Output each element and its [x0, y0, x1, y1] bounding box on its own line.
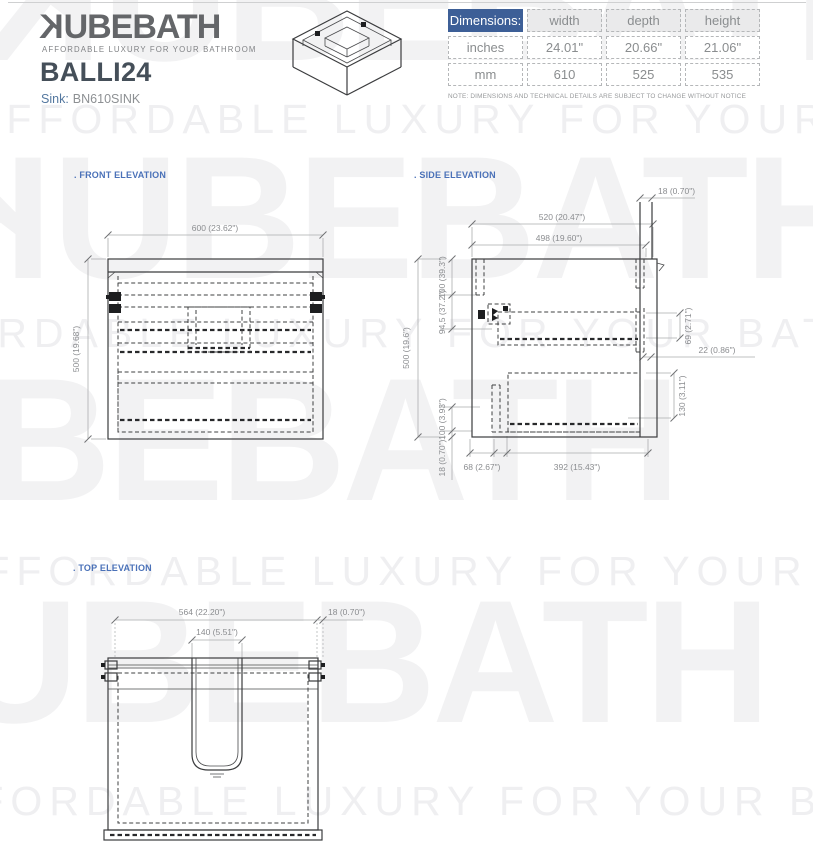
- sink-label: Sink:: [41, 92, 69, 106]
- logo-mirrored-k: K: [40, 8, 64, 47]
- svg-text:520 (20.47"): 520 (20.47"): [539, 212, 586, 222]
- front-dim-height: 500 (19.68"): [71, 256, 106, 443]
- brand-tagline: AFFORDABLE LUXURY FOR YOUR BATHROOM: [42, 45, 257, 54]
- svg-text:68 (2.67"): 68 (2.67"): [463, 462, 500, 472]
- top-cabinet-body: [104, 658, 322, 840]
- table-note: NOTE: DIMENSIONS AND TECHNICAL DETAILS A…: [448, 93, 760, 100]
- front-drawer-lower: [118, 372, 313, 432]
- svg-text:100 (3.93"): 100 (3.93"): [437, 398, 447, 440]
- svg-text:498 (19.60"): 498 (19.60"): [536, 233, 583, 243]
- sink-value: BN610SINK: [73, 92, 140, 106]
- svg-text:500 (19.6"): 500 (19.6"): [401, 327, 411, 369]
- sink-info: Sink:BN610SINK: [41, 92, 140, 106]
- side-drawer-lower: [492, 373, 640, 432]
- side-dim-top-panel: 18 (0.70"): [637, 186, 696, 202]
- row-label-mm: mm: [448, 63, 523, 86]
- isometric-view-drawing: [285, 5, 415, 100]
- side-dim-depth-inner: 498 (19.60"): [469, 233, 650, 257]
- side-drawer-upper: [498, 308, 644, 352]
- top-sink-channel: [192, 658, 242, 777]
- side-elevation-drawing: 18 (0.70") 520 (20.47") 498 (19.60"): [400, 180, 813, 490]
- svg-text:69 (2.71"): 69 (2.71"): [683, 307, 693, 344]
- inches-width: 24.01": [527, 36, 602, 59]
- front-elevation-label: . FRONT ELEVATION: [74, 170, 166, 180]
- top-elevation-drawing: 564 (22.20") 18 (0.70") 140 (5.51"): [60, 558, 420, 851]
- svg-text:600 (23.62"): 600 (23.62"): [192, 223, 239, 233]
- mm-width: 610: [527, 63, 602, 86]
- row-label-inches: inches: [448, 36, 523, 59]
- svg-text:564 (22.20"): 564 (22.20"): [179, 607, 226, 617]
- logo-rest: UBEBATH: [64, 8, 221, 46]
- col-header-height: height: [685, 9, 760, 32]
- top-dim-cutout: 140 (5.51"): [189, 627, 246, 658]
- col-header-width: width: [527, 9, 602, 32]
- svg-text:22 (0.86"): 22 (0.86"): [698, 345, 735, 355]
- mm-depth: 525: [606, 63, 681, 86]
- svg-text:130 (3.11"): 130 (3.11"): [677, 375, 687, 416]
- side-dim-bottom: 68 (2.67") 392 (15.43"): [463, 436, 651, 472]
- mm-height: 535: [685, 63, 760, 86]
- front-elevation-drawing: 600 (23.62") 500 (19.68"): [60, 215, 390, 460]
- svg-text:392 (15.43"): 392 (15.43"): [554, 462, 601, 472]
- inches-depth: 20.66": [606, 36, 681, 59]
- svg-text:94,5 (37.2"): 94,5 (37.2"): [437, 290, 447, 334]
- svg-text:500 (19.68"): 500 (19.68"): [71, 326, 81, 373]
- top-dim-panel: 18 (0.70"): [317, 607, 365, 657]
- svg-text:140 (5.51"): 140 (5.51"): [196, 627, 238, 637]
- col-header-depth: depth: [606, 9, 681, 32]
- svg-text:18 (0.70"): 18 (0.70"): [437, 439, 447, 476]
- front-dim-width: 600 (23.62"): [105, 223, 327, 257]
- top-wall-brackets: [101, 661, 325, 681]
- inches-height: 21.06": [685, 36, 760, 59]
- dimensions-table: Dimensions: width depth height inches 24…: [448, 9, 760, 100]
- side-dim-right-stack: 69 (2.71") 22 (0.86") 130 (3.11"): [628, 307, 755, 421]
- svg-text:18 (0.70"): 18 (0.70"): [658, 186, 695, 196]
- kubebath-logo: KUBEBATH: [40, 8, 220, 47]
- svg-text:18 (0.70"): 18 (0.70"): [328, 607, 365, 617]
- spec-sheet-page: KUBEBATH AFFORDABLE LUXURY FOR YOUR BATH…: [0, 0, 813, 851]
- front-cabinet-body: [108, 259, 323, 439]
- page-top-border: [8, 2, 806, 3]
- side-elevation-label: . SIDE ELEVATION: [414, 170, 496, 180]
- table-title-cell: Dimensions:: [448, 9, 523, 32]
- iso-cabinet: [293, 11, 401, 95]
- product-model: BALLI24: [40, 57, 152, 88]
- side-mount-hardware: [478, 304, 510, 324]
